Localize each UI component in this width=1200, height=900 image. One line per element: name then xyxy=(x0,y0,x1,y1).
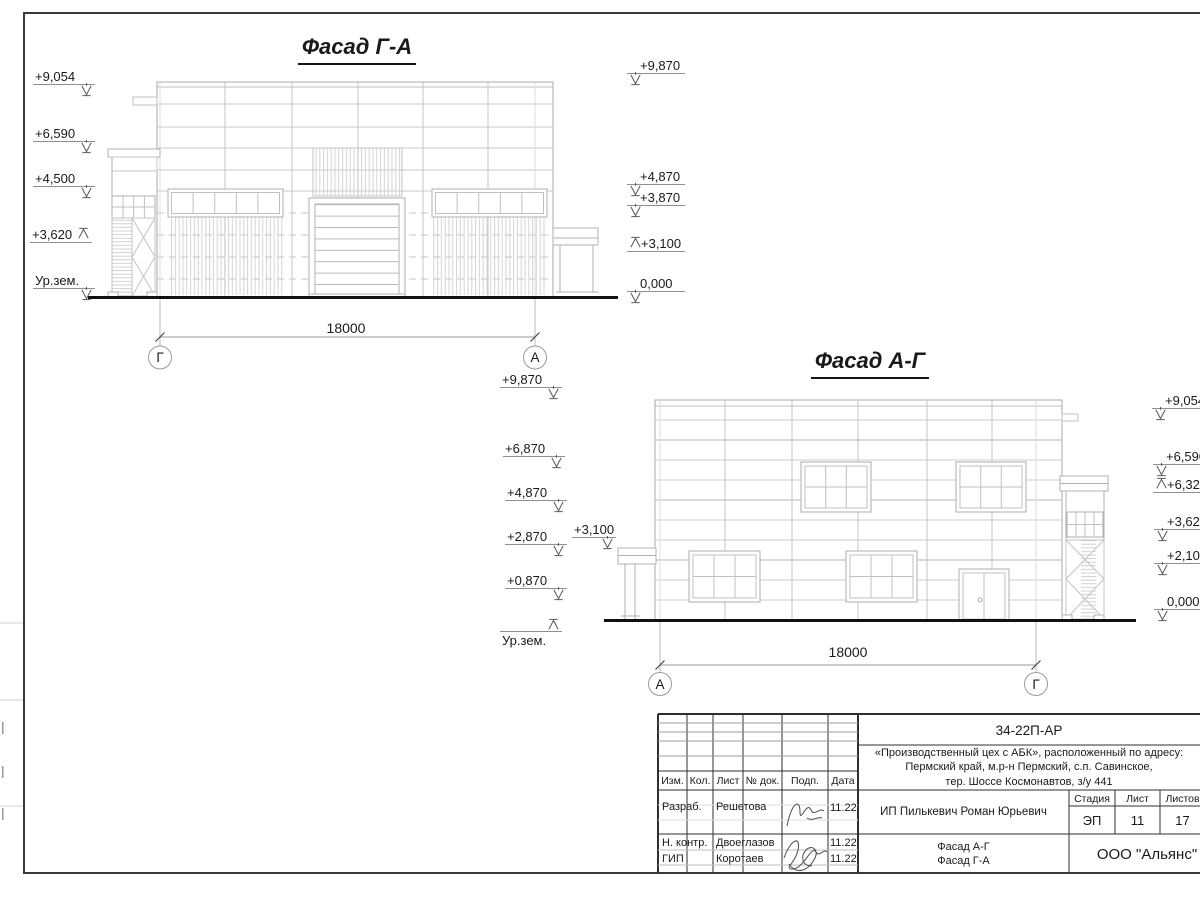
stamp-col-kol: Кол. xyxy=(687,772,713,790)
elevation-label: Ур.зем. xyxy=(502,633,546,648)
stamp-address-line: «Производственный цех с АБК», расположен… xyxy=(875,746,1183,761)
annex-right xyxy=(553,228,599,292)
stamp-role: Н. контр. xyxy=(662,837,707,849)
elevation-mark: +3,870 xyxy=(627,189,685,206)
elevation-label: +4,500 xyxy=(35,171,75,186)
elevation-arrow-down-icon xyxy=(79,140,94,154)
elevation-mark: +4,870 xyxy=(505,484,567,501)
window-band-left xyxy=(168,189,283,217)
elevation-arrow-down-icon xyxy=(1154,463,1169,477)
elevation-label: +6,590 xyxy=(35,126,75,141)
stamp-col-ndok: № док. xyxy=(743,772,782,790)
elevation-mark: Ур.зем. xyxy=(33,272,95,289)
stamp-stage-value: ЭП xyxy=(1069,806,1115,834)
elevation-arrow-down-icon xyxy=(79,287,94,301)
elevation-arrow-up-icon xyxy=(546,618,561,632)
stamp-address-line: тер. Шоссе Космонавтов, з/у 441 xyxy=(945,775,1112,790)
elevation-mark: 0,000 xyxy=(1154,593,1200,610)
axis-bubble: Г xyxy=(1024,673,1048,696)
stamp-doc-code: 34-22П-АР xyxy=(858,716,1200,744)
elevation-mark: +0,870 xyxy=(505,572,567,589)
stamp-name: Двоеглазов xyxy=(716,837,774,849)
elevation-arrow-up-icon xyxy=(76,227,91,241)
elevation-mark: +4,870 xyxy=(627,168,685,185)
stamp-sheet-label: Лист xyxy=(1115,791,1160,806)
stamp-date: 11.22 xyxy=(830,853,857,865)
elevation-arrow-down-icon xyxy=(79,185,94,199)
elevation-arrow-up-icon xyxy=(1154,477,1169,491)
stamp-address-line: Пермский край, м.р-н Пермский, с.п. Сави… xyxy=(905,760,1152,775)
elevation-label: +3,100 xyxy=(574,522,614,537)
upper-window-1 xyxy=(801,462,871,512)
elevation-mark: +3,100 xyxy=(572,521,616,538)
elevation-mark: +3,620 xyxy=(1154,513,1200,530)
elevation-mark: +6,870 xyxy=(503,440,565,457)
stamp-name: Решетова xyxy=(716,801,766,813)
elevation-mark: Ур.зем. xyxy=(500,631,562,648)
elevation-label: +3,620 xyxy=(1167,514,1200,529)
lower-window-2 xyxy=(846,551,917,602)
elevation-mark: +6,320 xyxy=(1153,476,1200,493)
elevation-label: +0,870 xyxy=(507,573,547,588)
stamp-col-data: Дата xyxy=(828,772,858,790)
elevation-mark: +4,500 xyxy=(33,170,95,187)
elevation-mark: +9,054 xyxy=(1152,392,1200,409)
elevation-mark: +9,870 xyxy=(627,57,685,74)
elevation-label: +6,590 xyxy=(1166,449,1200,464)
elevation-arrow-up-icon xyxy=(628,236,643,250)
roof-hook xyxy=(133,97,157,105)
stamp-name: Коротаев xyxy=(716,853,764,865)
stamp-total-value: 17 xyxy=(1160,806,1200,834)
elevation-mark: +9,054 xyxy=(33,68,95,85)
stamp-role: Разраб. xyxy=(662,801,702,813)
elevation-arrow-down-icon xyxy=(1155,562,1170,576)
elevation-mark: +9,870 xyxy=(500,371,562,388)
elevation-label: +9,054 xyxy=(1165,393,1200,408)
elevation-arrow-down-icon xyxy=(551,587,566,601)
elevation-arrow-down-icon xyxy=(1153,407,1168,421)
elevation-arrow-down-icon xyxy=(600,536,615,550)
roof-ledge xyxy=(1062,414,1078,421)
stamp-content-line: Фасад А-Г xyxy=(937,840,990,855)
stamp-stage-label: Стадия xyxy=(1069,791,1115,806)
stamp-role: ГИП xyxy=(662,853,684,865)
elevation-label: +2,100 xyxy=(1167,548,1200,563)
stamp-date: 11.22 xyxy=(830,802,857,814)
elevation-label: +6,870 xyxy=(505,441,545,456)
elevation-arrow-down-icon xyxy=(549,455,564,469)
elevation-mark: +6,590 xyxy=(1153,448,1200,465)
elevation-mark: +2,870 xyxy=(505,528,567,545)
axis-bubble: А xyxy=(523,346,547,369)
upper-window-2 xyxy=(956,462,1026,512)
elevation-label: +2,870 xyxy=(507,529,547,544)
elevation-arrow-down-icon xyxy=(546,386,561,400)
stair-tower-right xyxy=(1060,476,1108,620)
elevation-label: 0,000 xyxy=(1167,594,1200,609)
elevation-label: +4,870 xyxy=(507,485,547,500)
stamp-col-list: Лист xyxy=(713,772,743,790)
elevation-arrow-down-icon xyxy=(628,72,643,86)
elevation-label: Ур.зем. xyxy=(35,273,79,288)
elevation-mark: +3,620 xyxy=(30,226,92,243)
entrance-door xyxy=(959,569,1009,620)
stamp-sheet-value: 11 xyxy=(1115,806,1160,834)
elevation-label: +3,870 xyxy=(640,190,680,205)
axis-bubble: Г xyxy=(148,346,172,369)
elevation-label: 0,000 xyxy=(640,276,673,291)
stamp-content-line: Фасад Г-А xyxy=(937,854,990,869)
canopy-left xyxy=(618,548,656,619)
facade-ag-title: Фасад А-Г xyxy=(770,348,970,379)
elevation-label: +9,054 xyxy=(35,69,75,84)
stamp-col-podp: Подп. xyxy=(782,772,828,790)
window-band-right xyxy=(432,189,547,217)
elevation-label: +3,100 xyxy=(641,236,681,251)
elevation-arrow-down-icon xyxy=(79,83,94,97)
elevation-label: +6,320 xyxy=(1167,477,1200,492)
elevation-mark: +3,100 xyxy=(627,235,685,252)
elevation-label: +9,870 xyxy=(640,58,680,73)
dimension-label: 18000 xyxy=(301,320,391,336)
lower-window-1 xyxy=(689,551,760,602)
stamp-total-label: Листов xyxy=(1160,791,1200,806)
stamp-organization: ООО "Альянс" xyxy=(1069,835,1200,873)
sheet-canvas: Фасад Г-А Фасад А-Г +9,054 +6,590 +4,500… xyxy=(0,0,1200,900)
elevation-arrow-down-icon xyxy=(1155,608,1170,622)
elevation-mark: +2,100 xyxy=(1154,547,1200,564)
stair-tower-left xyxy=(108,149,160,297)
elevation-arrow-down-icon xyxy=(628,204,643,218)
elevation-arrow-down-icon xyxy=(551,499,566,513)
stamp-date: 11.22 xyxy=(830,837,857,849)
elevation-arrow-down-icon xyxy=(628,290,643,304)
elevation-arrow-down-icon xyxy=(551,543,566,557)
axis-bubble: А xyxy=(648,673,672,696)
stamp-sheet-content: Фасад А-Г Фасад Г-А xyxy=(860,835,1067,873)
elevation-label: +4,870 xyxy=(640,169,680,184)
signatures xyxy=(784,804,827,871)
stamp-project-address: «Производственный цех с АБК», расположен… xyxy=(860,746,1198,789)
elevation-label: +9,870 xyxy=(502,372,542,387)
facade-ga-title: Фасад Г-А xyxy=(257,34,457,65)
gate xyxy=(309,198,405,297)
elevation-mark: +6,590 xyxy=(33,125,95,142)
elevation-label: +3,620 xyxy=(32,227,72,242)
elevation-mark: 0,000 xyxy=(627,275,685,292)
stamp-client: ИП Пилькевич Роман Юрьевич xyxy=(860,790,1067,834)
elevation-arrow-down-icon xyxy=(1155,528,1170,542)
dimension-label: 18000 xyxy=(803,644,893,660)
stamp-col-izm: Изм. xyxy=(658,772,687,790)
